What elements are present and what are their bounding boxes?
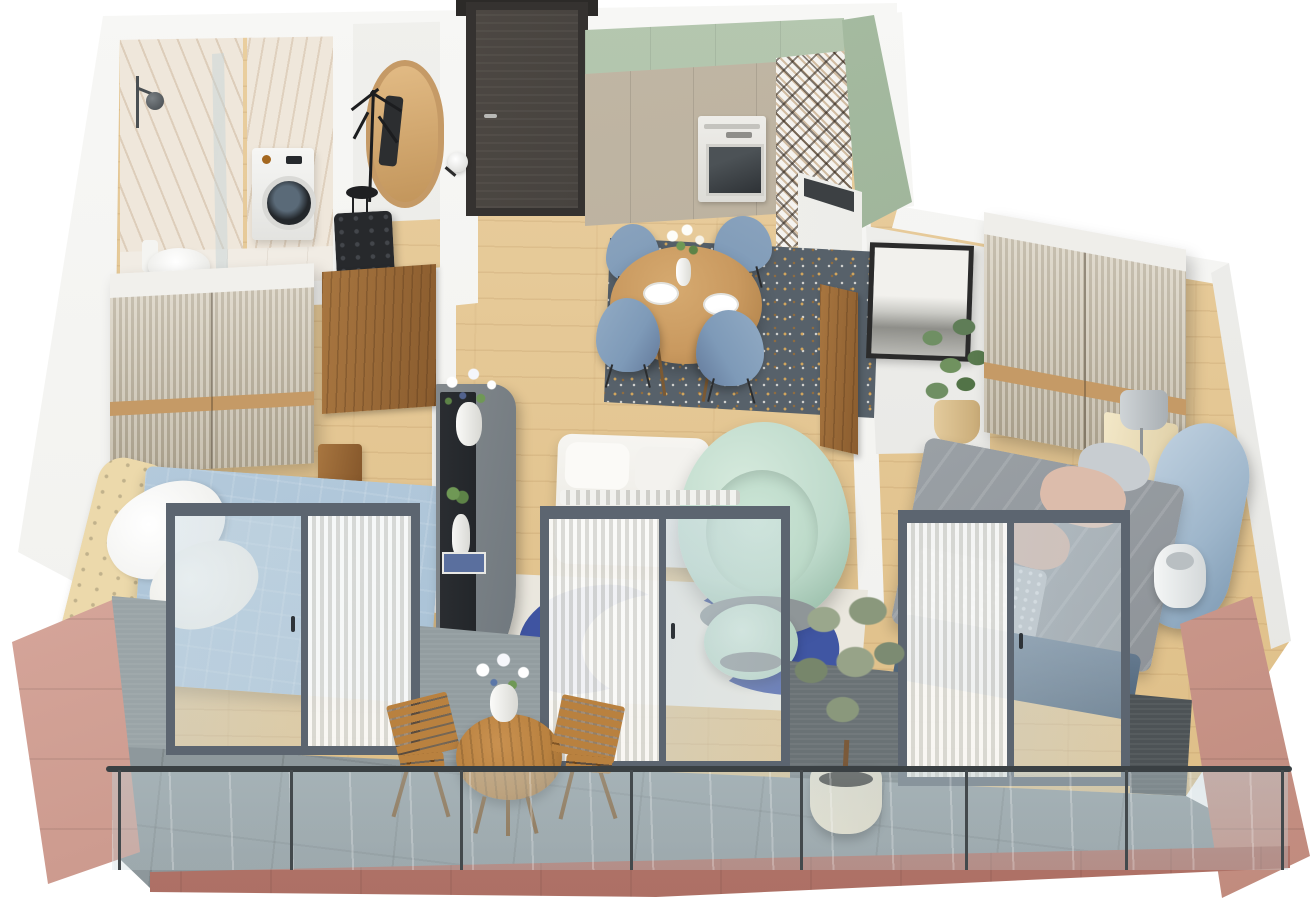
door-curtain (907, 523, 1007, 777)
dinner-plate (643, 282, 679, 305)
floor-lamp-inner (1166, 552, 1194, 570)
railing-post (800, 770, 803, 870)
door-mullion (659, 519, 666, 761)
oven-glass (706, 144, 764, 196)
shower-pipe (136, 76, 139, 128)
door-mullion (301, 516, 308, 746)
door-glass (175, 516, 301, 746)
door-handle (1019, 633, 1023, 649)
chair-back (386, 691, 460, 762)
olive-tree (786, 594, 912, 764)
wardrobe-bedroom1 (110, 263, 314, 474)
washing-machine-knob (262, 155, 271, 164)
door-glass (1014, 523, 1121, 777)
door-glass (666, 519, 781, 761)
wardrobe-seam (1084, 253, 1086, 451)
table-vase (676, 258, 691, 286)
entry-door-handle (484, 114, 497, 118)
railing-top-rail (106, 766, 1292, 772)
door-mullion (1007, 523, 1014, 777)
railing-post (118, 770, 121, 870)
railing-post (630, 770, 633, 870)
railing-post (965, 770, 968, 870)
door-handle (291, 616, 295, 632)
stool-leg (352, 196, 354, 214)
balcony-door-bedroom1 (166, 503, 420, 755)
washing-machine-door (262, 176, 316, 230)
bedroom1-open-door (322, 264, 436, 414)
railing-post (290, 770, 293, 870)
console-plant (444, 484, 470, 508)
coat-stand-stool (346, 186, 378, 199)
figurine (452, 514, 470, 556)
table-lamp (1120, 390, 1168, 430)
glass-railing (112, 772, 1288, 870)
railing-post (460, 770, 463, 870)
washing-machine-display (286, 156, 302, 164)
balcony-vase (490, 684, 518, 722)
plant-pot (934, 400, 980, 444)
balcony-door-bedroom2 (898, 510, 1130, 786)
oven-controls (726, 132, 752, 138)
table-lamp-stem (1140, 428, 1143, 456)
oven-handle (704, 124, 760, 129)
wardrobe-seam (211, 293, 213, 469)
wall-mirror (366, 60, 444, 208)
sofa-cushion (564, 442, 630, 490)
bedroom2-open-door (820, 284, 858, 455)
chair-back (551, 694, 626, 764)
shower-head-icon (146, 92, 164, 110)
console-books (442, 552, 486, 574)
apartment-floor-plan (0, 0, 1313, 900)
floor-lamp (1154, 544, 1206, 608)
door-handle (671, 623, 675, 639)
railing-post (1281, 770, 1284, 870)
console-vase (456, 402, 482, 446)
entry-door (476, 10, 578, 208)
curtain-pleats (560, 490, 740, 505)
railing-post (1125, 770, 1128, 870)
